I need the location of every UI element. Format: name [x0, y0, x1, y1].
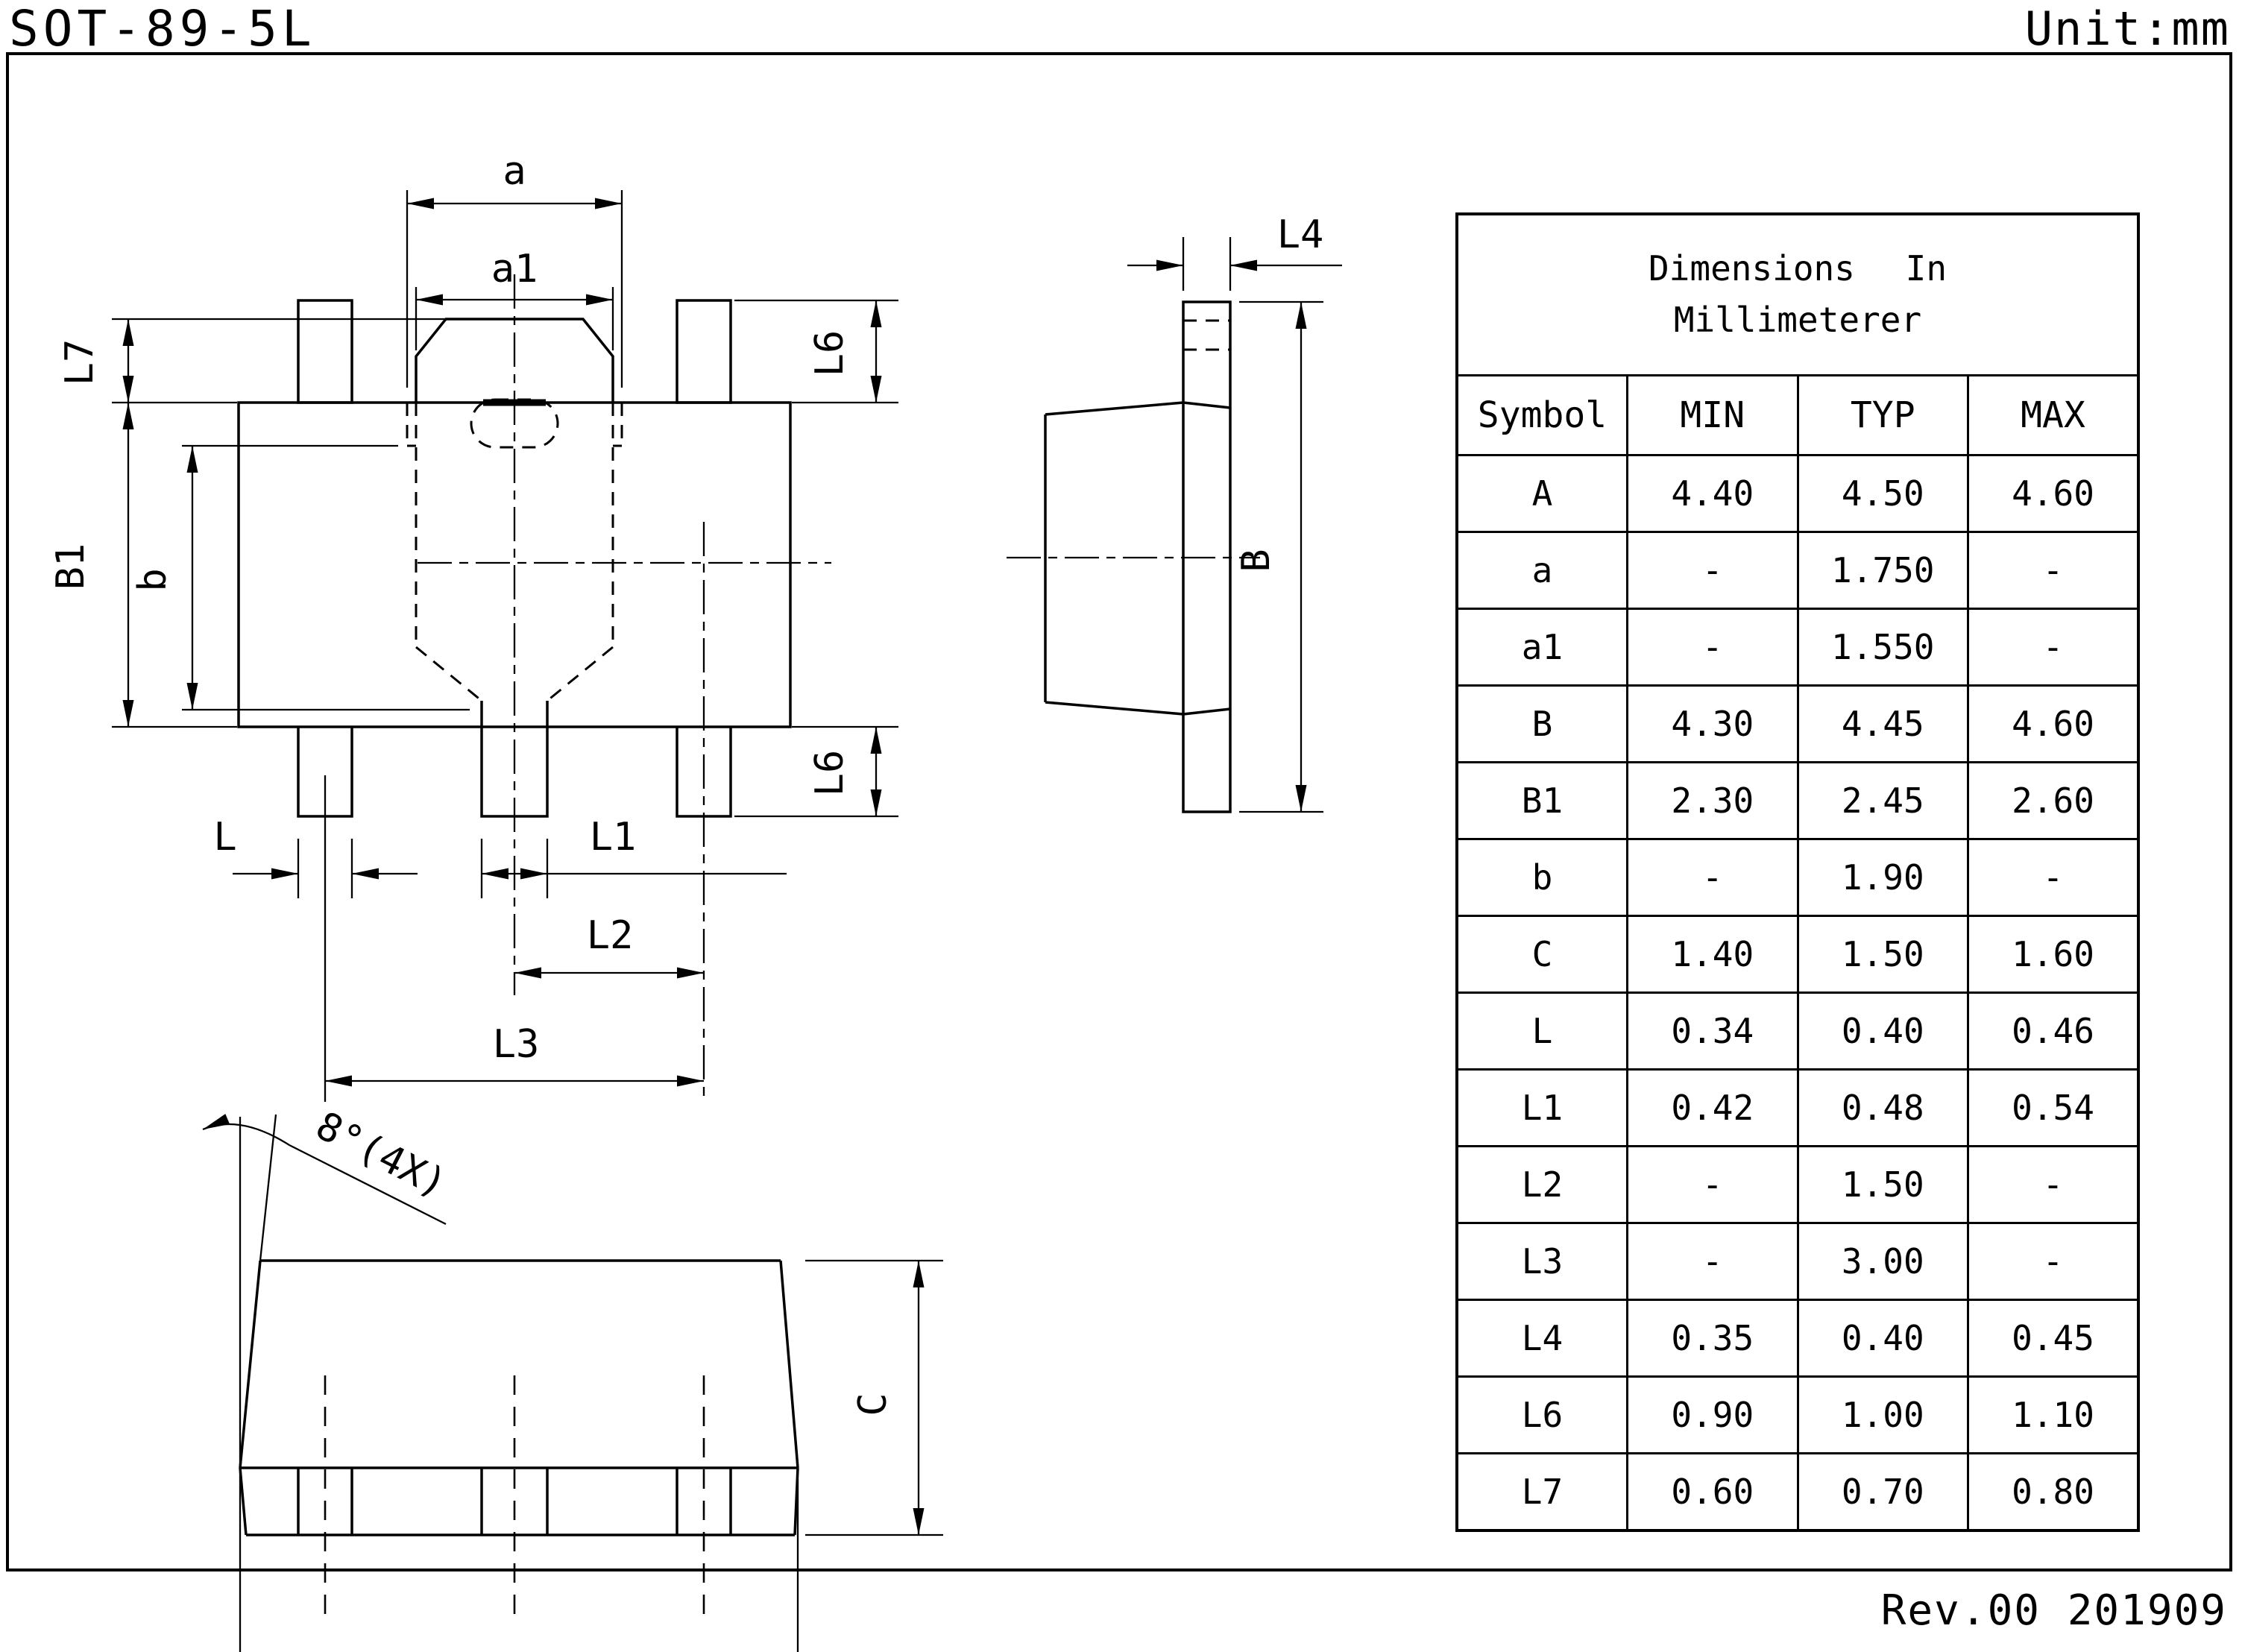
- table-row: C 1.40 1.50 1.60: [1457, 915, 2138, 992]
- table-cell: 1.50: [1798, 915, 1968, 992]
- dim-L6-bottom: L6: [734, 727, 898, 816]
- table-row: L6 0.90 1.00 1.10: [1457, 1376, 2138, 1453]
- table-row: L7 0.60 0.70 0.80: [1457, 1453, 2138, 1530]
- table-title-line1: Dimensions In: [1458, 243, 2137, 294]
- front-view: a a1 L7 B1 b L6: [48, 149, 898, 1103]
- table-row: L4 0.35 0.40 0.45: [1457, 1299, 2138, 1376]
- table-row: L2 - 1.50 -: [1457, 1146, 2138, 1223]
- table-cell: A: [1457, 455, 1628, 532]
- dim-label-a: a: [503, 149, 526, 194]
- table-cell: 1.00: [1798, 1376, 1968, 1453]
- col-header-symbol: Symbol: [1457, 375, 1628, 455]
- table-cell: -: [1968, 839, 2139, 915]
- table-cell: 4.50: [1798, 455, 1968, 532]
- table-cell: 1.60: [1968, 915, 2139, 992]
- table-cell: L1: [1457, 1069, 1628, 1146]
- dim-L4: L4: [1127, 212, 1342, 291]
- table-cell: L7: [1457, 1453, 1628, 1530]
- table-cell: 2.30: [1628, 762, 1798, 839]
- table-cell: L6: [1457, 1376, 1628, 1453]
- dim-A: A: [240, 1117, 798, 1652]
- dim-label-b: b: [130, 568, 175, 591]
- table-cell: -: [1968, 532, 2139, 608]
- table-cell: L4: [1457, 1299, 1628, 1376]
- dim-label-a1: a1: [491, 247, 538, 291]
- table-row: b - 1.90 -: [1457, 839, 2138, 915]
- table-row: a1 - 1.550 -: [1457, 608, 2138, 685]
- dim-label-L6-top: L6: [807, 330, 852, 377]
- centerlines: [325, 274, 831, 1103]
- dim-B1: B1: [48, 403, 237, 727]
- table-cell: 2.45: [1798, 762, 1968, 839]
- dim-label-L: L: [213, 815, 236, 860]
- table-cell: 0.70: [1798, 1453, 1968, 1530]
- table-cell: 4.40: [1628, 455, 1798, 532]
- bottom-view: A C 8°(4X): [203, 1103, 943, 1652]
- table-cell: -: [1628, 532, 1798, 608]
- col-header-min: MIN: [1628, 375, 1798, 455]
- table-cell: 4.60: [1968, 685, 2139, 762]
- table-cell: 1.50: [1798, 1146, 1968, 1223]
- table-cell: 0.48: [1798, 1069, 1968, 1146]
- leadframe-band: [240, 1468, 798, 1535]
- table-cell: -: [1968, 1223, 2139, 1299]
- table-cell: 0.90: [1628, 1376, 1798, 1453]
- table-cell: 1.550: [1798, 608, 1968, 685]
- table-cell: 0.42: [1628, 1069, 1798, 1146]
- table-cell: 4.30: [1628, 685, 1798, 762]
- table-cell: 0.60: [1628, 1453, 1798, 1530]
- table-cell: 0.34: [1628, 992, 1798, 1069]
- table-cell: 0.40: [1798, 992, 1968, 1069]
- col-header-typ: TYP: [1798, 375, 1968, 455]
- table-cell: L2: [1457, 1146, 1628, 1223]
- table-cell: -: [1628, 608, 1798, 685]
- dim-label-C: C: [851, 1393, 895, 1416]
- dim-B: B: [1234, 302, 1323, 812]
- body-profile-outline: [240, 1261, 798, 1468]
- side-view: L4 B: [1007, 212, 1342, 812]
- table-header-row: Symbol MIN TYP MAX: [1457, 375, 2138, 455]
- dim-label-L1: L1: [590, 815, 637, 860]
- table-cell: 1.750: [1798, 532, 1968, 608]
- table-cell: 4.60: [1968, 455, 2139, 532]
- table-cell: -: [1628, 1146, 1798, 1223]
- table-cell: a1: [1457, 608, 1628, 685]
- table-row: B1 2.30 2.45 2.60: [1457, 762, 2138, 839]
- table-title-cell: Dimensions In Millimeterer: [1457, 214, 2138, 375]
- top-left-lead: [298, 300, 352, 403]
- dim-L2: L2: [514, 913, 704, 973]
- table-row: L 0.34 0.40 0.46: [1457, 992, 2138, 1069]
- dim-label-L2: L2: [587, 913, 634, 958]
- table-row: L1 0.42 0.48 0.54: [1457, 1069, 2138, 1146]
- table-cell: 0.45: [1968, 1299, 2139, 1376]
- table-cell: 0.54: [1968, 1069, 2139, 1146]
- table-cell: -: [1628, 839, 1798, 915]
- table-cell: C: [1457, 915, 1628, 992]
- table-cell: 0.80: [1968, 1453, 2139, 1530]
- top-right-lead: [677, 300, 731, 403]
- table-cell: 1.40: [1628, 915, 1798, 992]
- dim-label-L4: L4: [1277, 212, 1324, 257]
- table-cell: 3.00: [1798, 1223, 1968, 1299]
- dim-L6-top: L6: [734, 300, 898, 403]
- table-cell: 4.45: [1798, 685, 1968, 762]
- dim-label-A: A: [506, 1648, 529, 1652]
- table-cell: a: [1457, 532, 1628, 608]
- dim-L: L: [213, 815, 418, 898]
- table-cell: 1.10: [1968, 1376, 2139, 1453]
- dim-L7: L7: [57, 319, 446, 403]
- dim-label-B: B: [1234, 549, 1279, 572]
- dim-L3: L3: [325, 1022, 704, 1081]
- dimensions-table: Dimensions In Millimeterer Symbol MIN TY…: [1455, 212, 2140, 1532]
- table-cell: B: [1457, 685, 1628, 762]
- table-cell: L3: [1457, 1223, 1628, 1299]
- table-cell: B1: [1457, 762, 1628, 839]
- dim-label-B1: B1: [48, 543, 93, 590]
- table-cell: 2.60: [1968, 762, 2139, 839]
- dim-label-L7: L7: [57, 339, 102, 386]
- table-cell: -: [1968, 1146, 2139, 1223]
- table-row: A 4.40 4.50 4.60: [1457, 455, 2138, 532]
- dim-b: b: [130, 446, 192, 710]
- table-title-line2: Millimeterer: [1458, 294, 2137, 346]
- table-cell: 1.90: [1798, 839, 1968, 915]
- table-row: B 4.30 4.45 4.60: [1457, 685, 2138, 762]
- dim-label-L3: L3: [493, 1022, 540, 1067]
- lead-centerlines: [325, 1375, 704, 1619]
- table-row: L3 - 3.00 -: [1457, 1223, 2138, 1299]
- table-cell: 0.46: [1968, 992, 2139, 1069]
- table-cell: 0.40: [1798, 1299, 1968, 1376]
- table-cell: -: [1628, 1223, 1798, 1299]
- col-header-max: MAX: [1968, 375, 2139, 455]
- side-hidden-lines: [1183, 321, 1230, 350]
- dim-L1: L1: [482, 815, 787, 898]
- dim-label-L6-bottom: L6: [807, 750, 852, 797]
- table-cell: 0.35: [1628, 1299, 1798, 1376]
- dim-C: C: [805, 1261, 943, 1535]
- table-row: a - 1.750 -: [1457, 532, 2138, 608]
- table-cell: L: [1457, 992, 1628, 1069]
- table-title-row: Dimensions In Millimeterer: [1457, 214, 2138, 375]
- table-cell: b: [1457, 839, 1628, 915]
- table-cell: -: [1968, 608, 2139, 685]
